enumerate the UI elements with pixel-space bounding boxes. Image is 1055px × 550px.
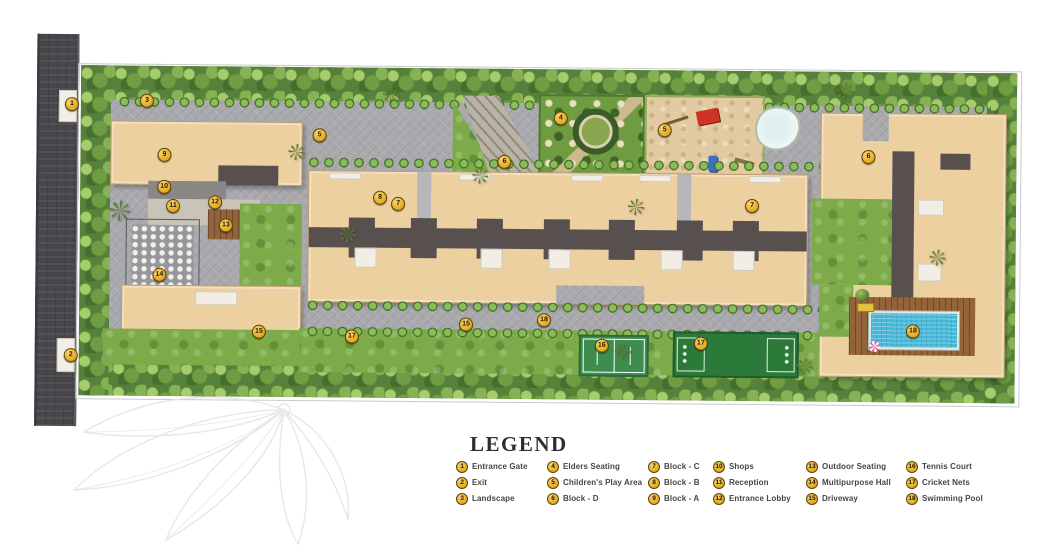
legend-item-label: Children's Play Area — [563, 478, 642, 487]
map-marker-3: 3 — [140, 94, 154, 108]
legend-item-shops: 10Shops — [713, 461, 791, 472]
legend-item-block-b: 8Block - B — [648, 477, 700, 488]
legend-item-label: Block - B — [664, 478, 700, 487]
map-marker-14: 14 — [152, 268, 166, 282]
map-marker-9: 9 — [157, 148, 171, 162]
legend-item-label: Exit — [472, 478, 487, 487]
legend-item-label: Elders Seating — [563, 462, 620, 471]
legend-item-reception: 11Reception — [713, 477, 791, 488]
legend-item-elders-seating: 4Elders Seating — [547, 461, 642, 472]
legend-number-badge: 16 — [906, 461, 918, 473]
legend-item-label: Reception — [729, 478, 769, 487]
map-marker-17: 17 — [694, 337, 708, 351]
legend-number-badge: 6 — [547, 493, 559, 505]
map-marker-5: 5 — [313, 128, 327, 142]
map-marker-6: 6 — [861, 150, 875, 164]
legend-item-driveway: 15Driveway — [806, 493, 891, 504]
legend-number-badge: 17 — [906, 477, 918, 489]
legend-item-label: Block - D — [563, 494, 599, 503]
legend-column-3: 7Block - C8Block - B9Block - A — [648, 461, 700, 509]
legend-item-label: Multipurpose Hall — [822, 478, 891, 487]
legend-item-label: Landscape — [472, 494, 515, 503]
map-marker-18: 18 — [906, 324, 920, 338]
site-plan-page: 123545669101112131487715171518161718 LEG… — [0, 0, 1055, 550]
legend-item-label: Block - C — [664, 462, 700, 471]
legend-item-cricket-nets: 17Cricket Nets — [906, 477, 983, 488]
map-marker-15: 15 — [459, 317, 473, 331]
legend-number-badge: 5 — [547, 477, 559, 489]
watermark-leaf-icon — [26, 380, 356, 548]
legend-number-badge: 14 — [806, 477, 818, 489]
legend-item-entrance-gate: 1Entrance Gate — [456, 461, 528, 472]
map-marker-5: 5 — [658, 123, 672, 137]
map-marker-7: 7 — [745, 199, 759, 213]
legend-number-badge: 9 — [648, 493, 660, 505]
map-marker-8: 8 — [373, 191, 387, 205]
legend-column-5: 13Outdoor Seating14Multipurpose Hall15Dr… — [806, 461, 891, 509]
legend-column-1: 1Entrance Gate2Exit3Landscape — [456, 461, 528, 509]
map-marker-10: 10 — [157, 180, 171, 194]
legend-item-label: Driveway — [822, 494, 858, 503]
legend-title: LEGEND — [470, 432, 568, 457]
map-marker-2: 2 — [64, 348, 78, 362]
map-marker-6: 6 — [497, 155, 511, 169]
legend-number-badge: 13 — [806, 461, 818, 473]
legend-item-exit: 2Exit — [456, 477, 528, 488]
map-marker-18: 18 — [537, 313, 551, 327]
legend-item-block-c: 7Block - C — [648, 461, 700, 472]
legend-item-label: Outdoor Seating — [822, 462, 886, 471]
legend-item-label: Block - A — [664, 494, 699, 503]
legend-item-children-s-play-area: 5Children's Play Area — [547, 477, 642, 488]
legend-item-multipurpose-hall: 14Multipurpose Hall — [806, 477, 891, 488]
legend-number-badge: 18 — [906, 493, 918, 505]
legend-item-label: Cricket Nets — [922, 478, 970, 487]
map-marker-7: 7 — [391, 197, 405, 211]
legend-item-swimming-pool: 18Swimming Pool — [906, 493, 983, 504]
legend-number-badge: 8 — [648, 477, 660, 489]
legend-item-landscape: 3Landscape — [456, 493, 528, 504]
legend-number-badge: 3 — [456, 493, 468, 505]
map-marker-15: 15 — [252, 325, 266, 339]
map-marker-1: 1 — [65, 97, 79, 111]
map-marker-12: 12 — [208, 195, 222, 209]
legend-number-badge: 12 — [713, 493, 725, 505]
legend-number-badge: 1 — [456, 461, 468, 473]
legend-item-block-a: 9Block - A — [648, 493, 700, 504]
legend-column-2: 4Elders Seating5Children's Play Area6Blo… — [547, 461, 642, 509]
legend-column-6: 16Tennis Court17Cricket Nets18Swimming P… — [906, 461, 983, 509]
legend-item-label: Entrance Lobby — [729, 494, 791, 503]
map-marker-4: 4 — [554, 111, 568, 125]
legend-item-entrance-lobby: 12Entrance Lobby — [713, 493, 791, 504]
legend-item-label: Swimming Pool — [922, 494, 983, 503]
legend-item-label: Shops — [729, 462, 754, 471]
legend-number-badge: 15 — [806, 493, 818, 505]
map-marker-16: 16 — [595, 339, 609, 353]
legend-number-badge: 10 — [713, 461, 725, 473]
legend-item-label: Entrance Gate — [472, 462, 528, 471]
legend-item-tennis-court: 16Tennis Court — [906, 461, 983, 472]
legend-item-outdoor-seating: 13Outdoor Seating — [806, 461, 891, 472]
legend-item-block-d: 6Block - D — [547, 493, 642, 504]
map-marker-13: 13 — [219, 218, 233, 232]
legend-item-label: Tennis Court — [922, 462, 972, 471]
map-marker-17: 17 — [345, 329, 359, 343]
legend-column-4: 10Shops11Reception12Entrance Lobby — [713, 461, 791, 509]
legend-number-badge: 4 — [547, 461, 559, 473]
map-marker-11: 11 — [166, 199, 180, 213]
legend-number-badge: 7 — [648, 461, 660, 473]
legend: LEGEND 1Entrance Gate2Exit3Landscape 4El… — [456, 432, 1036, 522]
legend-number-badge: 2 — [456, 477, 468, 489]
legend-number-badge: 11 — [713, 477, 725, 489]
